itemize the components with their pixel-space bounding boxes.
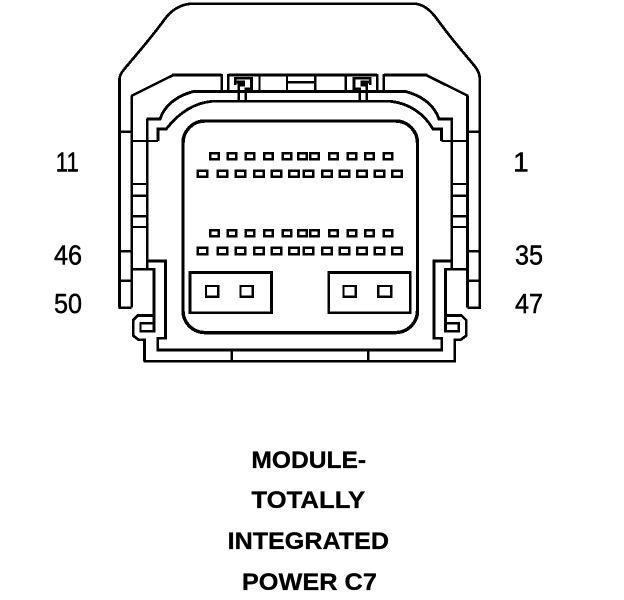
svg-text:1: 1 xyxy=(513,146,529,177)
svg-text:47: 47 xyxy=(515,288,543,319)
svg-text:POWER C7: POWER C7 xyxy=(242,569,377,596)
svg-text:INTEGRATED: INTEGRATED xyxy=(228,528,389,555)
svg-text:TOTALLY: TOTALLY xyxy=(251,487,365,514)
svg-text:35: 35 xyxy=(515,240,543,271)
svg-text:MODULE-: MODULE- xyxy=(251,447,366,474)
svg-text:50: 50 xyxy=(54,288,82,319)
svg-text:46: 46 xyxy=(54,240,82,271)
svg-text:11: 11 xyxy=(56,146,79,177)
